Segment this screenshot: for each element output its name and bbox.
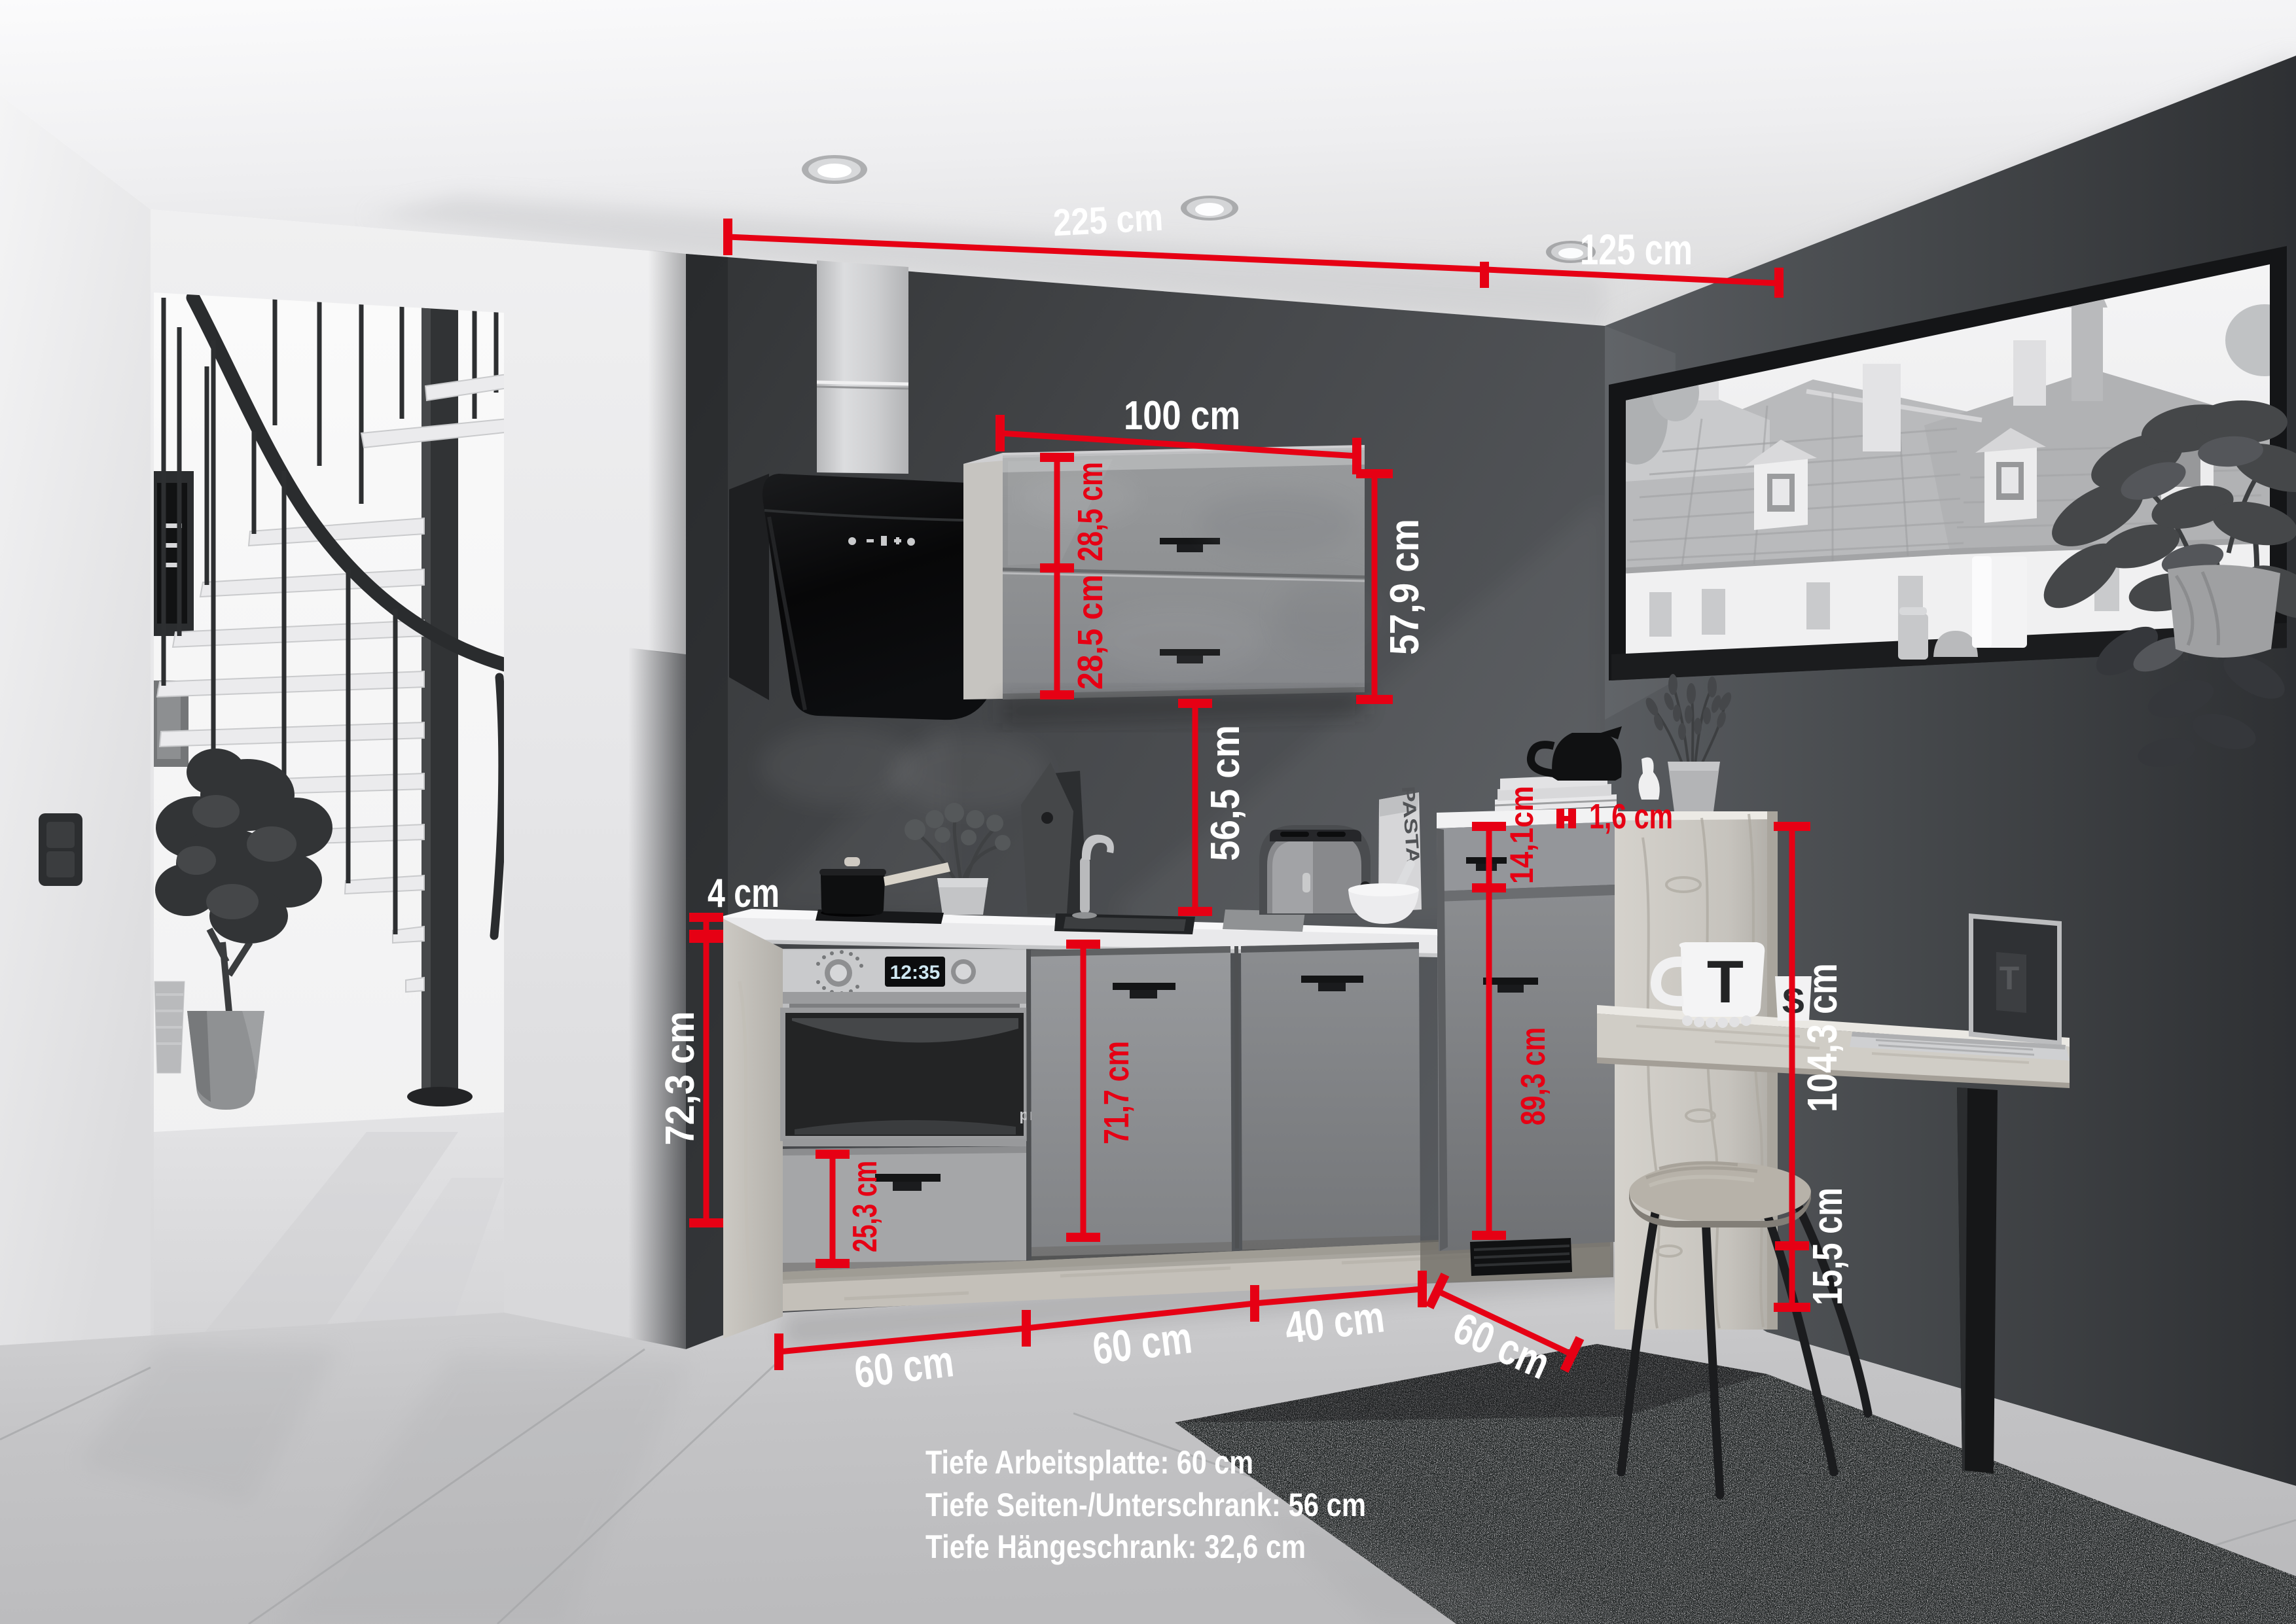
svg-text:28,5 cm: 28,5 cm [1071, 574, 1110, 690]
svg-text:12:35: 12:35 [890, 962, 941, 983]
svg-text:15,5 cm: 15,5 cm [1804, 1188, 1851, 1305]
svg-text:89,3 cm: 89,3 cm [1515, 1027, 1552, 1125]
svg-text:Tiefe Seiten-/Unterschrank: 56: Tiefe Seiten-/Unterschrank: 56 cm [925, 1487, 1366, 1523]
svg-text:Tiefe Arbeitsplatte: 60 cm: Tiefe Arbeitsplatte: 60 cm [925, 1444, 1253, 1481]
svg-text:4 cm: 4 cm [708, 871, 780, 916]
svg-text:T: T [2000, 960, 2020, 997]
svg-text:104,3 cm: 104,3 cm [1799, 963, 1846, 1112]
svg-text:71,7 cm: 71,7 cm [1097, 1041, 1136, 1144]
svg-text:1,6 cm: 1,6 cm [1589, 797, 1673, 836]
svg-text:14,1cm: 14,1cm [1503, 786, 1540, 884]
svg-text:72,3 cm: 72,3 cm [658, 1012, 703, 1146]
svg-text:25,3 cm: 25,3 cm [846, 1161, 884, 1252]
svg-text:225 cm: 225 cm [1052, 196, 1164, 245]
svg-text:57,9 cm: 57,9 cm [1382, 519, 1427, 655]
svg-text:125 cm: 125 cm [1580, 225, 1693, 274]
svg-text:100 cm: 100 cm [1124, 393, 1240, 438]
svg-text:28,5 cm: 28,5 cm [1071, 462, 1110, 561]
svg-text:56,5 cm: 56,5 cm [1203, 725, 1248, 861]
svg-text:Tiefe Hängeschrank: 32,6 cm: Tiefe Hängeschrank: 32,6 cm [925, 1528, 1306, 1565]
svg-text:T: T [1707, 949, 1744, 1015]
